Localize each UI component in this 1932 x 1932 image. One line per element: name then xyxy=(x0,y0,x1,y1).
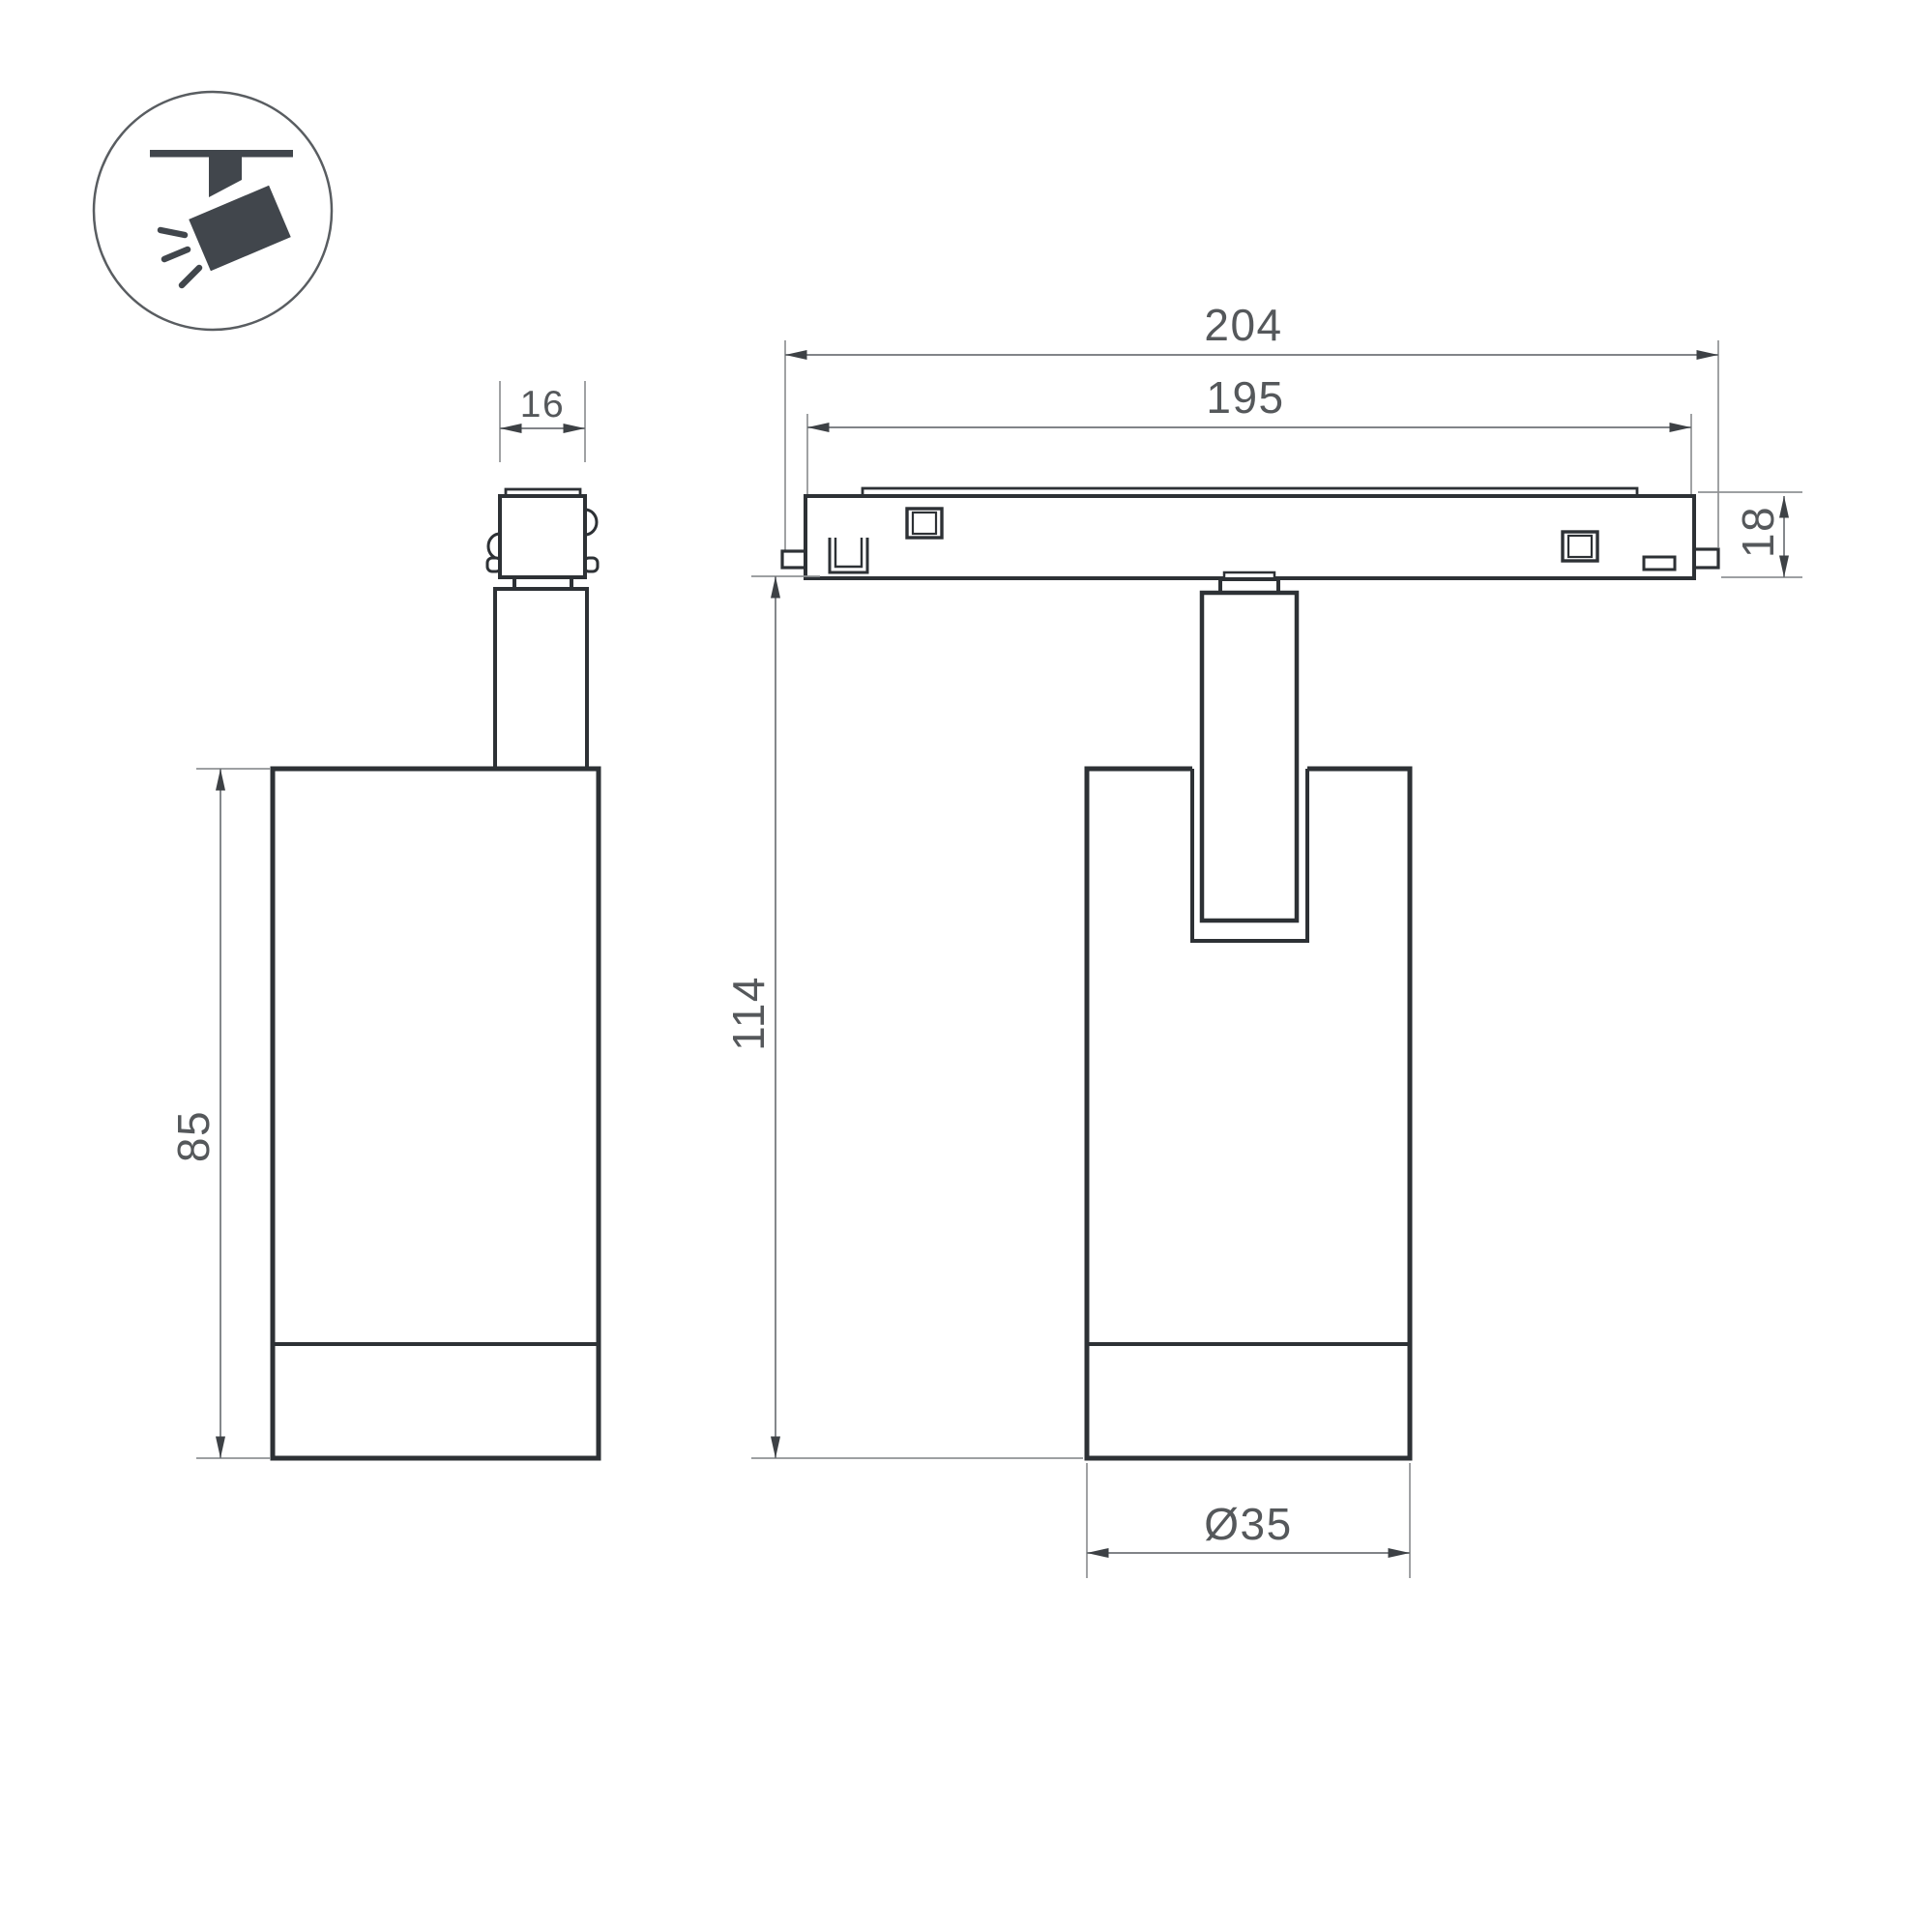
dim-label-dia35: Ø35 xyxy=(1204,1499,1292,1549)
dim-label-114: 114 xyxy=(723,976,774,1051)
front-view: 204 195 xyxy=(723,300,1802,1578)
drawing-canvas: 16 85 xyxy=(0,0,1932,1932)
side-lamp-body xyxy=(273,769,599,1458)
side-track-adapter xyxy=(487,489,598,589)
side-view: 16 85 xyxy=(168,381,599,1458)
track-rail xyxy=(782,488,1718,578)
dim-label-204: 204 xyxy=(1204,300,1282,350)
dim-label-16: 16 xyxy=(520,384,565,425)
rail-left-end-tab xyxy=(782,551,805,568)
rail-right-end-tab xyxy=(1694,549,1718,568)
dim-connector-width: 16 xyxy=(500,381,585,462)
adapter-block xyxy=(500,496,585,577)
dim-label-18: 18 xyxy=(1733,506,1783,558)
dim-label-85: 85 xyxy=(168,1110,219,1162)
dim-label-195: 195 xyxy=(1206,372,1284,423)
technical-drawing: 16 85 xyxy=(0,0,1932,1932)
dim-body-height: 85 xyxy=(168,769,271,1458)
front-stem-column xyxy=(1202,593,1297,921)
dim-track-length: 195 xyxy=(807,372,1691,494)
dim-overall-height: 114 xyxy=(723,576,1083,1458)
front-stem xyxy=(1202,572,1297,921)
track-spotlight-icon xyxy=(94,92,332,330)
dim-body-diameter: Ø35 xyxy=(1087,1463,1410,1578)
side-stem xyxy=(495,589,587,769)
